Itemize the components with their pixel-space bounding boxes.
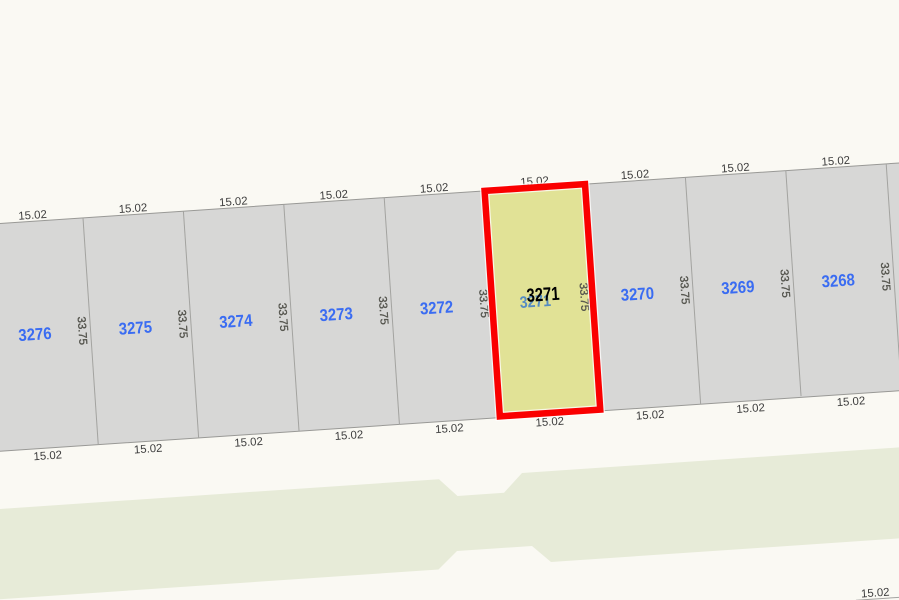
svg-text:15.02: 15.02 — [319, 189, 348, 203]
svg-text:3269: 3269 — [721, 278, 755, 298]
svg-text:15.02: 15.02 — [861, 587, 890, 600]
svg-text:33.75: 33.75 — [75, 316, 89, 345]
svg-text:3268: 3268 — [821, 271, 855, 291]
svg-text:33.75: 33.75 — [275, 303, 289, 332]
svg-text:3274: 3274 — [219, 312, 253, 332]
svg-text:15.02: 15.02 — [736, 402, 765, 416]
svg-text:3272: 3272 — [419, 298, 453, 318]
svg-text:3271: 3271 — [526, 283, 560, 306]
svg-text:15.02: 15.02 — [234, 436, 263, 450]
svg-text:15.02: 15.02 — [219, 195, 248, 209]
svg-text:15.02: 15.02 — [721, 162, 750, 176]
svg-text:33.75: 33.75 — [677, 276, 691, 305]
svg-text:15.02: 15.02 — [836, 395, 865, 409]
svg-text:33.75: 33.75 — [878, 262, 892, 291]
svg-text:15.02: 15.02 — [420, 182, 449, 196]
svg-text:33.75: 33.75 — [376, 296, 390, 325]
svg-text:15.02: 15.02 — [118, 202, 147, 216]
svg-text:15.02: 15.02 — [821, 155, 850, 169]
svg-text:3276: 3276 — [18, 325, 52, 345]
svg-text:3273: 3273 — [319, 305, 353, 325]
svg-text:15.02: 15.02 — [134, 443, 163, 457]
svg-text:33.75: 33.75 — [777, 269, 791, 298]
svg-text:15.02: 15.02 — [18, 209, 47, 223]
svg-text:15.02: 15.02 — [334, 429, 363, 443]
svg-text:3270: 3270 — [620, 285, 654, 305]
svg-text:33.75: 33.75 — [175, 309, 189, 338]
svg-text:15.02: 15.02 — [435, 422, 464, 436]
svg-text:15.02: 15.02 — [620, 168, 649, 182]
svg-text:15.02: 15.02 — [636, 409, 665, 423]
svg-text:15.02: 15.02 — [33, 449, 62, 463]
svg-text:3275: 3275 — [118, 319, 152, 339]
